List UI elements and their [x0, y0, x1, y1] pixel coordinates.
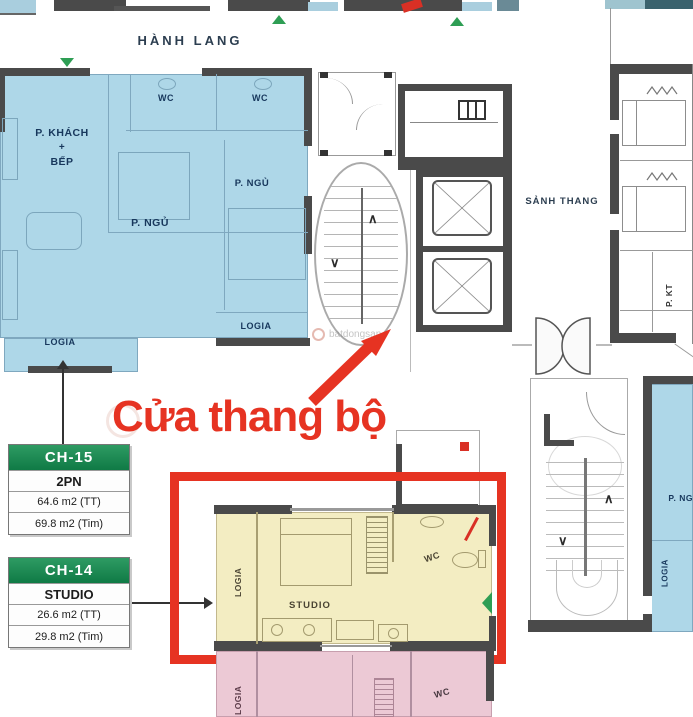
bed [622, 100, 686, 146]
dining-table [26, 212, 82, 250]
unit-code: CH-15 [9, 445, 129, 470]
pkt-label: P. KT [662, 272, 676, 318]
wall-segment [643, 614, 652, 632]
partition-line [652, 252, 653, 332]
bed [228, 208, 306, 280]
wall-segment [610, 333, 676, 343]
wc-fixture [254, 78, 272, 90]
door-jamb [384, 72, 392, 78]
wall-segment [304, 76, 312, 146]
corridor-wall-line [610, 8, 611, 64]
bed-pillow-line [636, 101, 637, 145]
wall-segment [114, 6, 210, 11]
wardrobe [374, 678, 394, 717]
bed [622, 186, 686, 232]
corridor-label: HÀNH LANG [128, 32, 252, 48]
wall-segment [643, 382, 652, 596]
partition-line [652, 540, 693, 541]
wall-segment [503, 84, 512, 332]
wall-segment [28, 366, 112, 373]
wall-segment [610, 134, 619, 214]
elevator-guide-line [410, 122, 498, 123]
partition-line [620, 250, 693, 251]
top-window-strip [0, 0, 36, 15]
partition-line [224, 140, 225, 310]
bedroom-label: P. NGỦ [222, 177, 282, 189]
callout-line-ch15 [62, 368, 64, 444]
corridor-line [596, 344, 612, 346]
floor-plan-canvas: HÀNH LANG WC WC P. KHÁCH + BẾP P. NGỦ P.… [0, 0, 693, 717]
window-segment [462, 2, 492, 11]
stair-divider [361, 188, 363, 324]
unit-type: STUDIO [9, 583, 129, 604]
window-segment [308, 2, 338, 11]
partition-line [126, 130, 308, 131]
door-marker-icon [450, 17, 464, 26]
stair-boundary-line [410, 156, 411, 372]
bed [118, 152, 190, 220]
stair-down-arrow: ∨ [558, 534, 568, 547]
stair-uturn-arc-inner [572, 560, 602, 588]
wall-segment [610, 230, 619, 334]
wall-segment [202, 68, 312, 76]
cabinet [2, 250, 18, 320]
unit-area-tim: 29.8 m2 (Tim) [9, 625, 129, 647]
living-kitchen-label: P. KHÁCH [14, 126, 110, 140]
red-dot-mark [460, 442, 469, 451]
elevator-symbol [458, 100, 486, 120]
logia-label: LOGIA [658, 550, 672, 596]
door-jamb [384, 150, 392, 156]
double-door-icon [530, 314, 596, 378]
wall-segment [610, 74, 619, 120]
partition-line [352, 655, 353, 717]
partition-line [130, 74, 131, 132]
hook-zigzag-icon [646, 86, 678, 95]
wc-label: WC [146, 92, 186, 104]
diagonal-line [674, 343, 693, 361]
logia-partition [256, 651, 258, 717]
partition-line [216, 312, 308, 313]
wall-segment [544, 440, 574, 446]
wc-label: WC [240, 92, 280, 104]
corridor-line [512, 344, 532, 346]
bedroom-label: P. NGỦ [662, 492, 693, 504]
elevator-car [432, 180, 492, 236]
stair-divider [584, 458, 587, 576]
unit-area-tim: 69.8 m2 (Tim) [9, 512, 129, 534]
callout-arrow-up-icon [57, 360, 69, 369]
unit-type: 2PN [9, 470, 129, 491]
wc-fixture [158, 78, 176, 90]
elevator-symbol-line [475, 102, 477, 118]
unit-area-tt: 26.6 m2 (TT) [9, 604, 129, 625]
highlight-rectangle [170, 472, 506, 664]
wall-segment [610, 64, 693, 74]
door-marker-icon [60, 58, 74, 67]
stair-down-arrow: ∨ [330, 256, 340, 269]
logia-label: LOGIA [230, 678, 246, 717]
partition-line [620, 310, 693, 311]
bedroom-label: P. NGỦ [110, 216, 190, 230]
partition-line [108, 74, 109, 232]
elevator-symbol-line [467, 102, 469, 118]
bed-pillow-line [636, 187, 637, 231]
hook-zigzag-icon [646, 172, 678, 181]
partition-line [620, 160, 693, 161]
unit-info-box-ch15: CH-15 2PN 64.6 m2 (TT) 69.8 m2 (Tim) [8, 444, 130, 535]
wall-segment [216, 338, 310, 346]
unit-code: CH-14 [9, 558, 129, 583]
wall-segment [0, 68, 90, 76]
logia-label: LOGIA [20, 336, 100, 348]
wall-segment [423, 246, 503, 252]
wall-segment [645, 0, 693, 9]
stair-up-arrow: ∧ [368, 212, 378, 225]
annotation-text: Cửa thang bộ [112, 392, 386, 442]
elevator-car [432, 258, 492, 314]
wall-segment [528, 620, 648, 632]
wall-segment [228, 0, 310, 11]
living-kitchen-plus: + [14, 141, 110, 153]
wall-segment [486, 651, 494, 701]
door-marker-icon [272, 15, 286, 24]
logia-label: LOGIA [216, 320, 296, 332]
living-kitchen-label: BẾP [14, 155, 110, 169]
stair-up-arrow: ∧ [604, 492, 614, 505]
partition-line [216, 74, 217, 130]
wc-partition [410, 651, 412, 717]
unit-area-tt: 64.6 m2 (TT) [9, 491, 129, 512]
elevator-shaft-top [398, 84, 510, 164]
unit-info-box-ch14: CH-14 STUDIO 26.6 m2 (TT) 29.8 m2 (Tim) [8, 557, 130, 648]
wall-segment [497, 0, 519, 11]
lobby-label: SẢNH THANG [512, 194, 612, 208]
door-jamb [320, 150, 328, 156]
